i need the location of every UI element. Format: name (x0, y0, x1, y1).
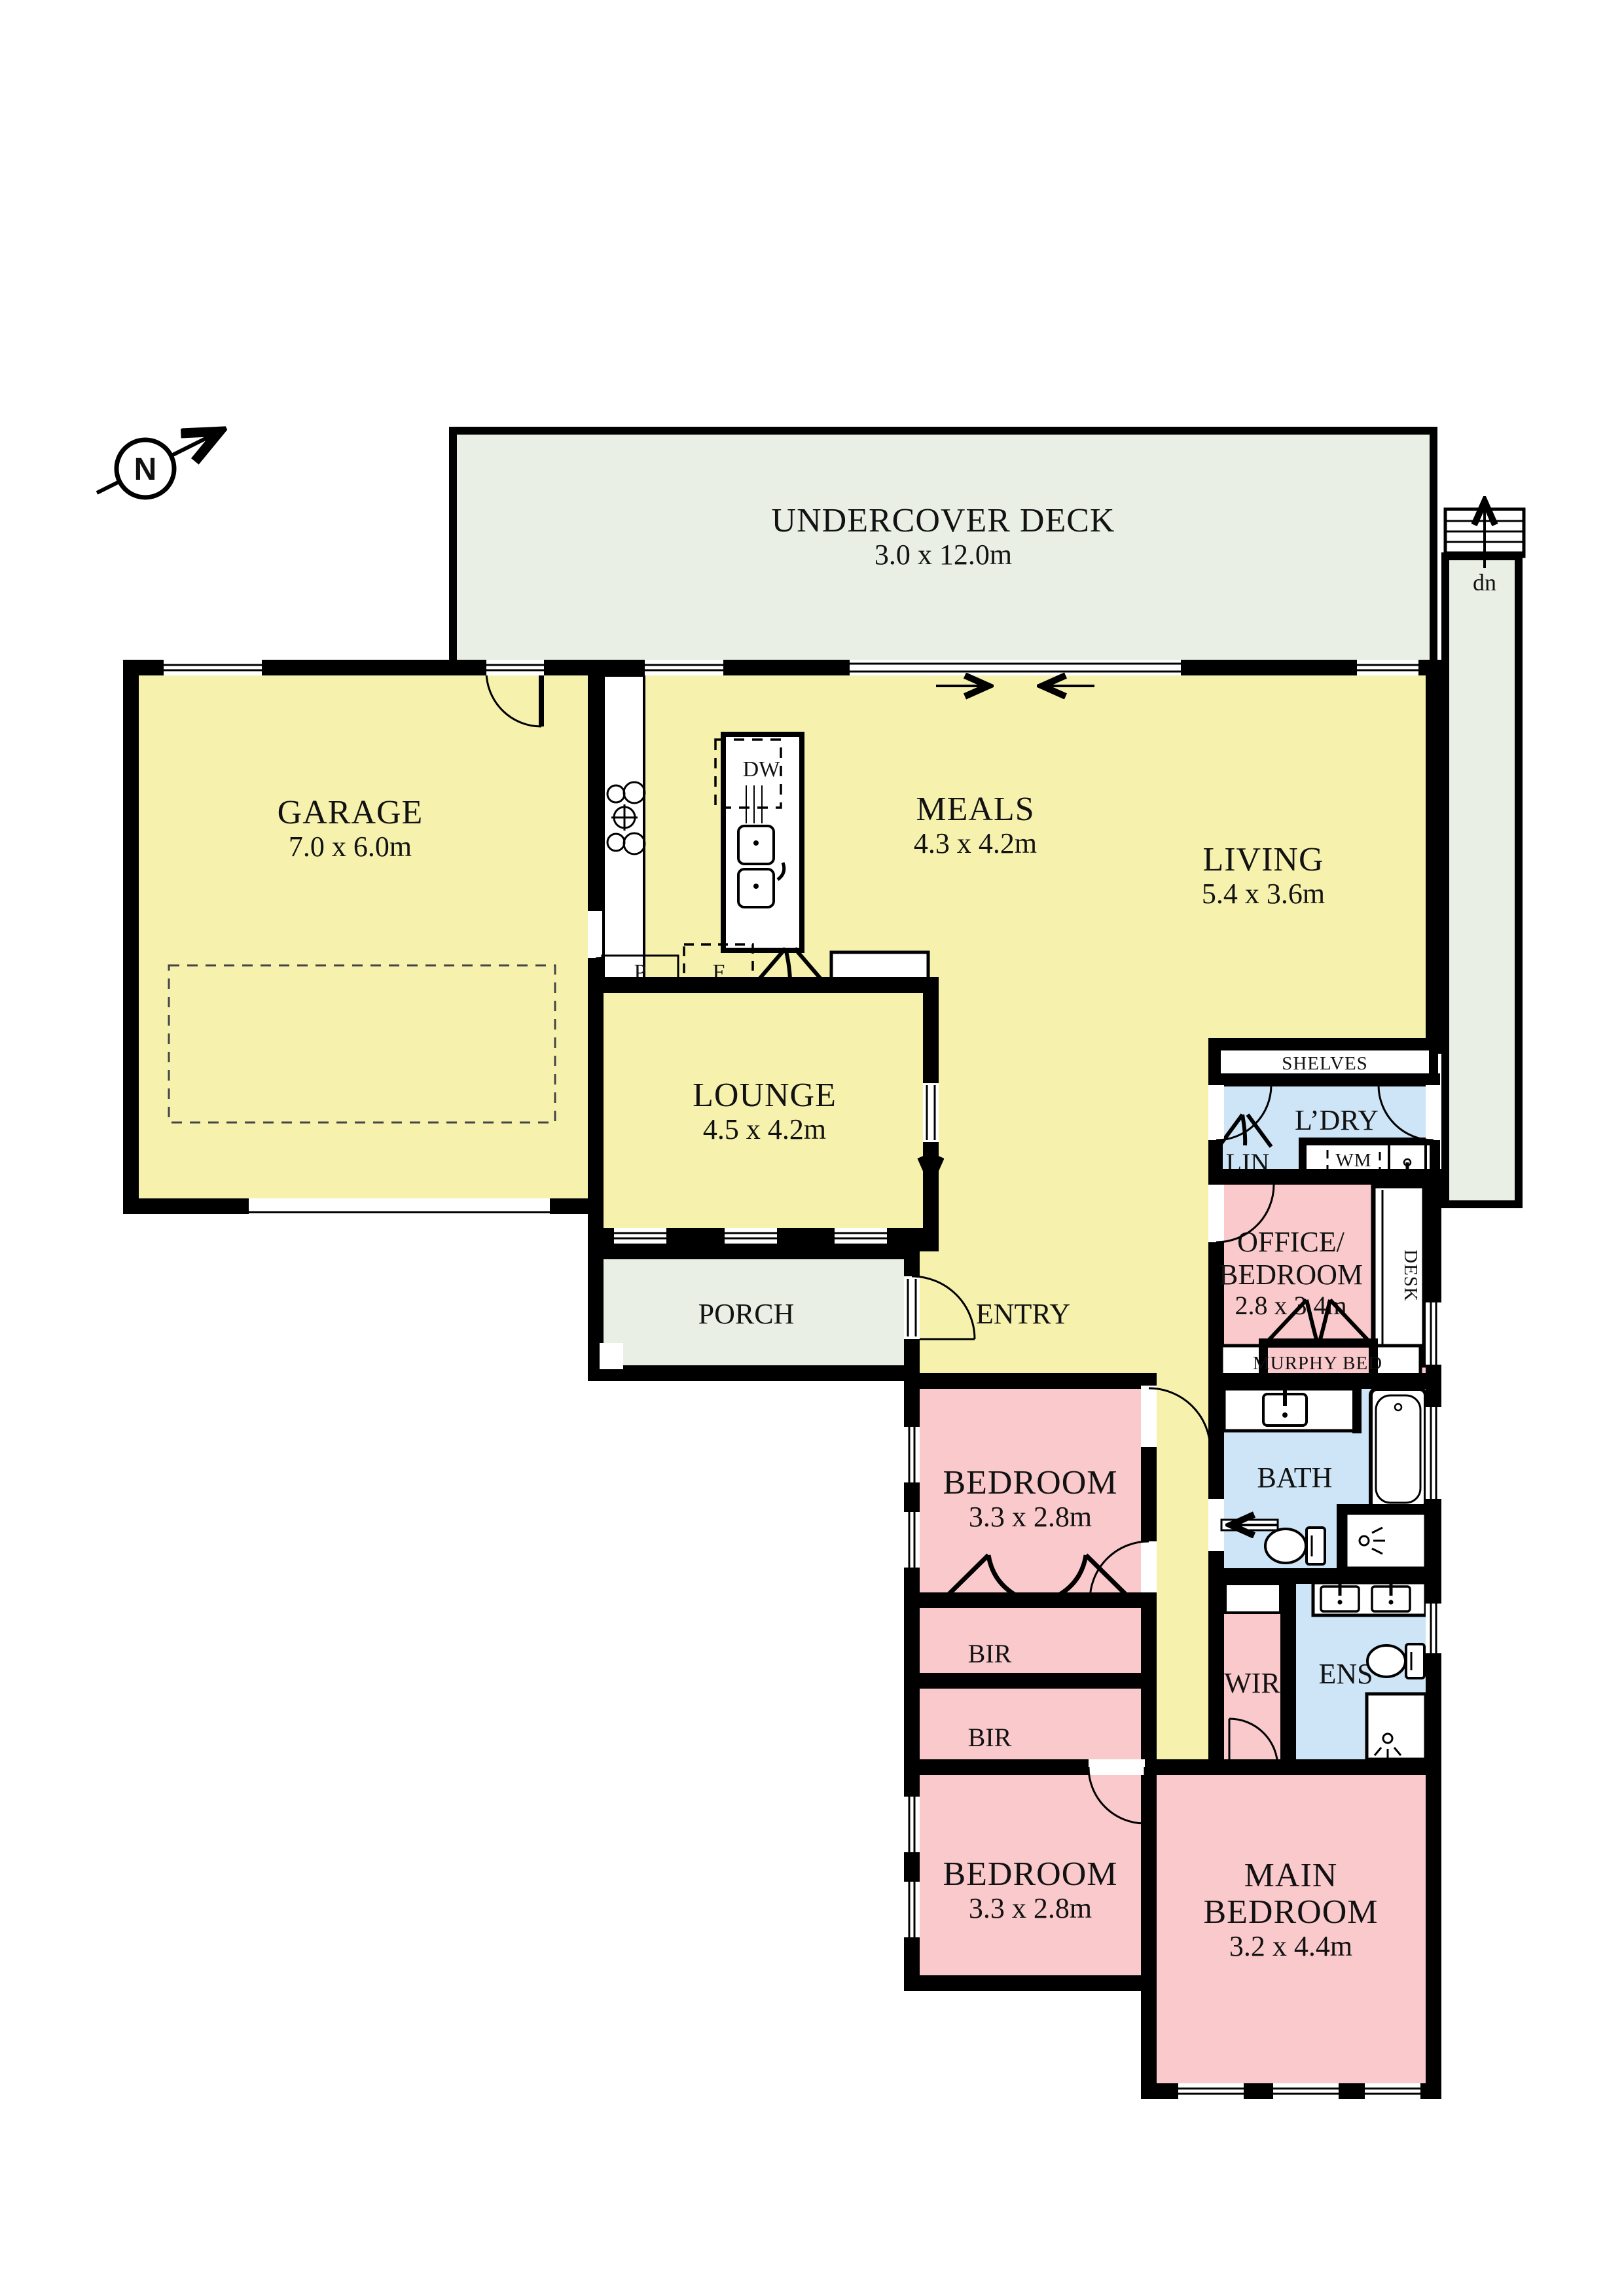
wir-label: WIR (1224, 1667, 1280, 1699)
living-name: LIVING (1202, 841, 1324, 878)
lounge-dims: 4.5 x 4.2m (703, 1113, 826, 1145)
entry-name: ENTRY (976, 1298, 1070, 1330)
murphy-bed-label: MURPHY BED (1253, 1353, 1382, 1374)
window (1426, 1407, 1441, 1499)
laundry-zone: SHELVES L’DRY LIN WM (1208, 1046, 1441, 1177)
bedroom-3: BEDROOM 3.3 x 2.8m (912, 1767, 1149, 1983)
shelves-label: SHELVES (1282, 1053, 1368, 1074)
shower-icon (1367, 1694, 1426, 1759)
bir2-area (912, 1681, 1149, 1767)
floor-plan: N UNDERCOVER DECK 3.0 x 12.0m dn GARAGE … (0, 0, 1624, 2296)
main-bedroom-dims: 3.2 x 4.4m (1229, 1930, 1352, 1962)
living-dims: 5.4 x 3.6m (1202, 878, 1325, 910)
washing-machine-label: WM (1335, 1150, 1371, 1171)
bir1-label: BIR (968, 1639, 1012, 1668)
porch-step (600, 1343, 623, 1369)
window (1426, 1302, 1441, 1365)
ens-vanity (1313, 1580, 1426, 1615)
main-bedroom-name-line2: BEDROOM (1203, 1893, 1378, 1931)
bathtub-icon (1371, 1389, 1426, 1509)
window (1426, 1604, 1441, 1653)
bir2-label: BIR (968, 1723, 1012, 1752)
bedroom3-dims: 3.3 x 2.8m (969, 1892, 1092, 1924)
stairs-down-label: dn (1473, 569, 1496, 596)
walkway-area (1445, 556, 1519, 1204)
meals-dims: 4.3 x 4.2m (914, 827, 1037, 859)
bath-partition (1352, 1381, 1362, 1433)
window (1178, 2083, 1420, 2099)
desk-label: DESK (1400, 1249, 1421, 1302)
ensuite: ENS (1288, 1576, 1441, 1782)
garage-name: GARAGE (278, 794, 424, 831)
north-compass: N (97, 433, 216, 497)
toilet-icon (1367, 1644, 1424, 1678)
walk-in-robe: WIR (1216, 1576, 1288, 1775)
toilet-icon (1265, 1528, 1325, 1564)
ens-label: ENS (1318, 1658, 1373, 1690)
garage: GARAGE 7.0 x 6.0m (131, 660, 643, 1214)
north-label: N (134, 452, 157, 487)
deck-dims: 3.0 x 12.0m (875, 539, 1012, 571)
shower-icon (1346, 1513, 1426, 1568)
window (164, 660, 262, 675)
laundry-name: L’DRY (1295, 1104, 1379, 1136)
lounge-name: LOUNGE (693, 1077, 837, 1114)
undercover-deck: UNDERCOVER DECK 3.0 x 12.0m (453, 431, 1434, 668)
porch-name: PORCH (698, 1298, 795, 1330)
office-bedroom: OFFICE/ BEDROOM 2.8 x 3.4m DESK MURPHY B… (1208, 1177, 1441, 1381)
office-name-line1: OFFICE/ (1237, 1226, 1345, 1258)
garage-area (131, 668, 596, 1206)
bedroom2-dims: 3.3 x 2.8m (969, 1501, 1092, 1533)
dishwasher-label: DW (743, 757, 781, 781)
bath-sink-icon (1263, 1389, 1307, 1426)
garage-dims: 7.0 x 6.0m (289, 831, 412, 863)
floor-plan-page: N UNDERCOVER DECK 3.0 x 12.0m dn GARAGE … (0, 0, 1624, 2296)
side-walkway: dn (1445, 504, 1524, 1204)
lounge: LOUNGE 4.5 x 4.2m (596, 985, 939, 1236)
wir-shelf (1225, 1584, 1280, 1613)
porch: PORCH (596, 1251, 912, 1373)
office-name-line2: BEDROOM (1219, 1259, 1363, 1291)
lounge-windows (614, 1228, 887, 1244)
bath-name: BATH (1257, 1462, 1333, 1494)
bir1-area (912, 1600, 1149, 1681)
main-bedroom-name-line1: MAIN (1244, 1857, 1338, 1894)
deck-name: UNDERCOVER DECK (772, 502, 1115, 539)
bedroom2-name: BEDROOM (943, 1464, 1117, 1501)
bedroom3-name: BEDROOM (943, 1856, 1117, 1893)
meals-name: MEALS (916, 791, 1034, 828)
bathroom: BATH (1208, 1381, 1434, 1576)
